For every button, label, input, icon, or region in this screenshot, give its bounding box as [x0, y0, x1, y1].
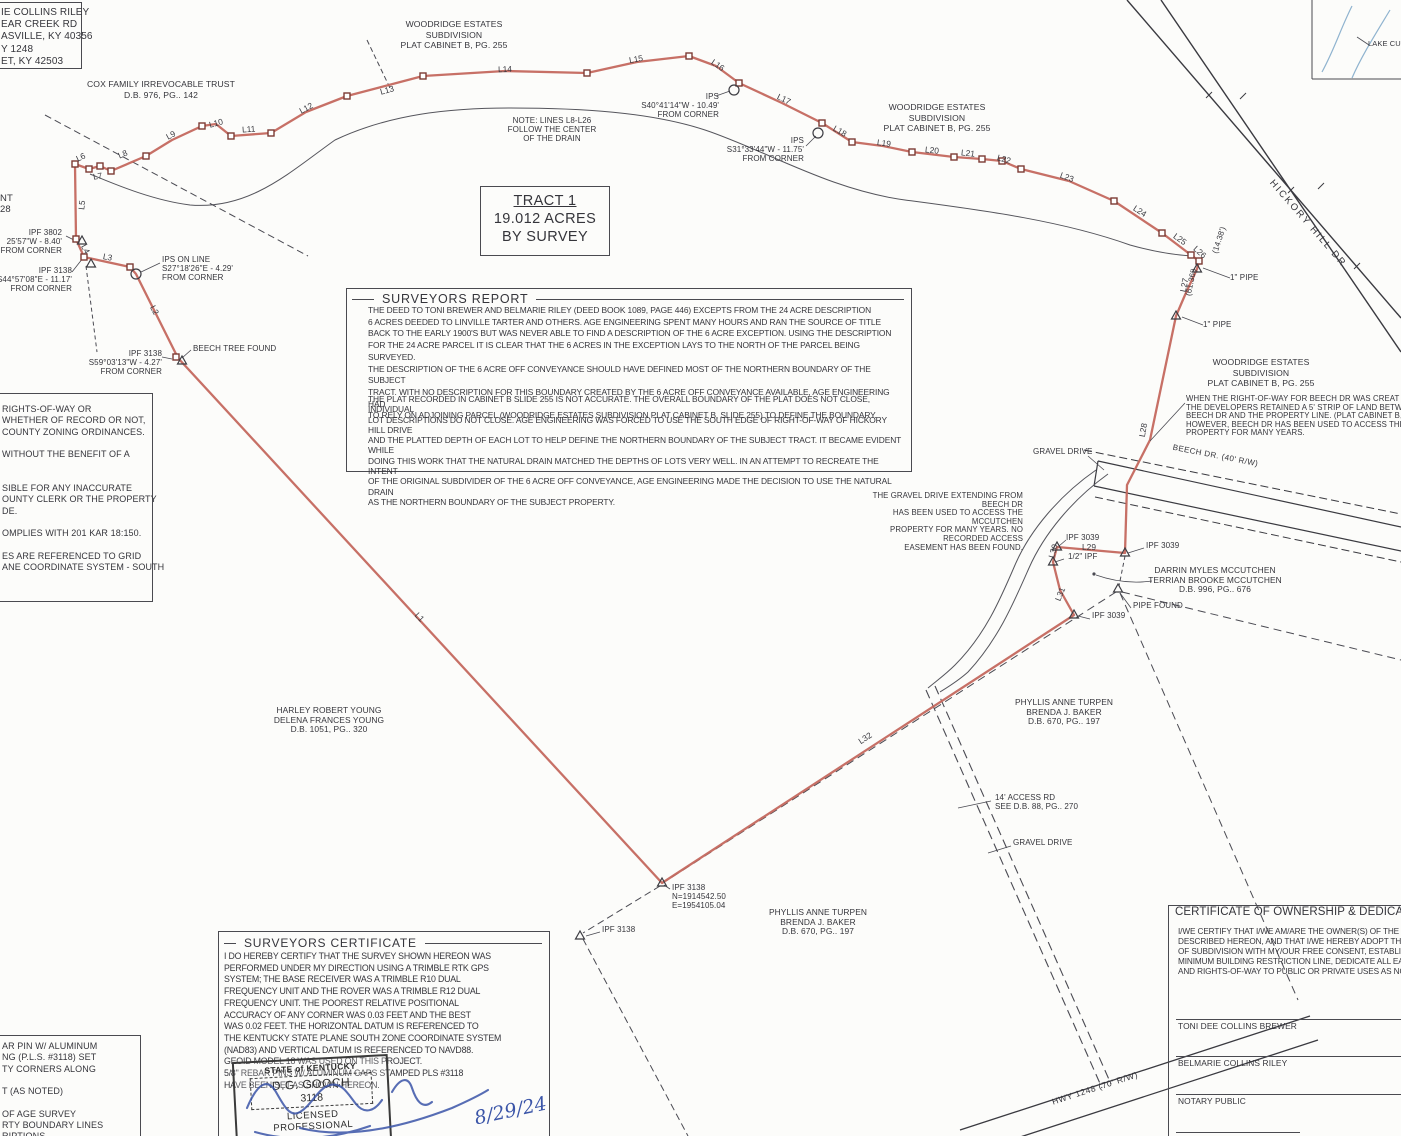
left-notes-text: RIGHTS-OF-WAY OR WHETHER OF RECORD OR NO…: [2, 404, 164, 573]
drain-note: NOTE: LINES L8-L26 FOLLOW THE CENTER OF …: [496, 117, 608, 143]
survey-plat-page: IE COLLINS RILEY EAR CREEK RD ASVILLE, K…: [0, 0, 1401, 1136]
line-label-l19: L19: [876, 137, 891, 149]
turpen-owner-label-north: PHYLLIS ANNE TURPEN BRENDA J. BAKER D.B.…: [1003, 698, 1125, 727]
ipf-3138-corner-coords: IPF 3138 N=1914542.50 E=1954105.04: [672, 884, 726, 910]
rule-right: [536, 299, 904, 300]
ownership-certificate-body: I/WE CERTIFY THAT I/WE AM/ARE THE OWNER(…: [1178, 927, 1401, 977]
tract-by-survey: BY SURVEY: [481, 228, 609, 246]
gravel-access-note: THE GRAVEL DRIVE EXTENDING FROM BEECH DR…: [843, 492, 1023, 552]
ownership-sig2: BELMARIE COLLINS RILEY: [1178, 1059, 1287, 1068]
ownership-certificate-title: CERTIFICATE OF OWNERSHIP & DEDICATION: [1175, 906, 1401, 919]
hickory-hill-road: [1127, 0, 1401, 352]
mccutchen-owner-label: DARRIN MYLES MCCUTCHEN TERRIAN BROOKE MC…: [1134, 566, 1296, 595]
line-label-l14: L14: [498, 64, 512, 74]
turpen-owner-label-south: PHYLLIS ANNE TURPEN BRENDA J. BAKER D.B.…: [757, 908, 879, 937]
ips-s40-note: IPS S40°41'14"W - 10.49' FROM CORNER: [616, 93, 719, 119]
surveyors-certificate-title: SURVEYORS CERTIFICATE: [244, 936, 417, 950]
beech-rw-note: WHEN THE RIGHT-OF-WAY FOR BEECH DR WAS C…: [1186, 395, 1401, 438]
rule-left: [224, 943, 236, 944]
ownership-sig1: TONI DEE COLLINS BREWER: [1178, 1022, 1297, 1031]
ipf-3802-note: IPF 3802 25'57"W - 8.40' FROM CORNER: [0, 229, 62, 255]
line-label-l11: L11: [242, 124, 256, 135]
beech-dr-road: [1084, 450, 1401, 562]
ipf-3039-right-label: IPF 3039: [1146, 542, 1179, 551]
tract-title: TRACT 1: [481, 192, 609, 210]
surveyors-report-para2: THE PLAT RECORDED IN CABINET B SLIDE 255…: [368, 394, 904, 507]
ips-s31-note: IPS S31°33'44"W - 11.75' FROM CORNER: [701, 137, 804, 163]
access-road: [926, 686, 1111, 1088]
pipe-1in-lower-label: 1" PIPE: [1203, 321, 1231, 330]
woodridge-label-northeast: WOODRIDGE ESTATES SUBDIVISION PLAT CABIN…: [860, 102, 1014, 134]
pipe-found-label: PIPE FOUND: [1133, 602, 1183, 611]
ownership-sig3: NOTARY PUBLIC: [1178, 1097, 1246, 1106]
pipe-1in-upper-label: 1" PIPE: [1230, 274, 1258, 283]
beech-tree-found-label: BEECH TREE FOUND: [193, 345, 276, 354]
ipf-3039-bottom-label: IPF 3039: [1092, 612, 1125, 621]
lake-label: LAKE CU: [1368, 40, 1401, 49]
cox-trust-label: COX FAMILY IRREVOCABLE TRUST D.B. 976, P…: [84, 79, 238, 100]
signature-line-3: [1176, 1094, 1401, 1095]
access-rd-label: 14' ACCESS RD SEE D.B. 88, PG.. 270: [995, 793, 1078, 811]
line-label-l29: L29: [1082, 542, 1096, 552]
stamp-name-box: D.G. GOOCH 3118: [250, 1072, 374, 1110]
tract-title-block: TRACT 1 19.012 ACRES BY SURVEY: [480, 186, 610, 256]
left-parcel-fragment: NT 28: [0, 193, 13, 215]
legend-notes-text: AR PIN W/ ALUMINUM NG (P.L.S. #3118) SET…: [2, 1041, 103, 1136]
ips-on-line-note: IPS ON LINE S27°18'26"E - 4.29' FROM COR…: [162, 256, 233, 282]
gravel-drive-upper-label: GRAVEL DRIVE: [1033, 448, 1092, 457]
half-ipf-label: 1/2" IPF: [1068, 553, 1097, 562]
ipf-3138-beech-note: IPF 3138 S59°03'13"W - 4.27' FROM CORNER: [58, 350, 162, 376]
young-owner-label: HARLEY ROBERT YOUNG DELENA FRANCES YOUNG…: [267, 706, 391, 735]
surveyors-report-title: SURVEYORS REPORT: [382, 292, 528, 306]
ipf-3138-west-note: IPF 3138 S44°57'08"E - 11.17' FROM CORNE…: [0, 267, 72, 293]
rule-left: [352, 299, 374, 300]
surveyor-stamp: STATE of KENTUCKY D.G. GOOCH 3118 LICENS…: [232, 1054, 392, 1136]
surveyors-certificate-title-row: SURVEYORS CERTIFICATE: [224, 936, 542, 950]
line-label-l21: L21: [961, 147, 976, 158]
woodridge-label-east: WOODRIDGE ESTATES SUBDIVISION PLAT CABIN…: [1184, 357, 1338, 389]
signature-line-1: [1176, 1019, 1401, 1020]
tract-acreage: 19.012 ACRES: [481, 210, 609, 228]
line-label-l20: L20: [925, 144, 940, 155]
surveyors-report-title-row: SURVEYORS REPORT: [352, 292, 904, 306]
owner-address-text: IE COLLINS RILEY EAR CREEK RD ASVILLE, K…: [1, 7, 93, 68]
ipf-3138-tie-label: IPF 3138: [602, 926, 635, 935]
woodridge-label-north: WOODRIDGE ESTATES SUBDIVISION PLAT CABIN…: [377, 19, 531, 51]
rule-right: [425, 943, 542, 944]
gravel-drive-lower-label: GRAVEL DRIVE: [1013, 839, 1072, 848]
signature-line-2: [1176, 1056, 1401, 1057]
line-label-l5: L5: [76, 200, 87, 210]
line-label-l7: L7: [92, 170, 103, 181]
signature-line-4: [1176, 1132, 1300, 1133]
